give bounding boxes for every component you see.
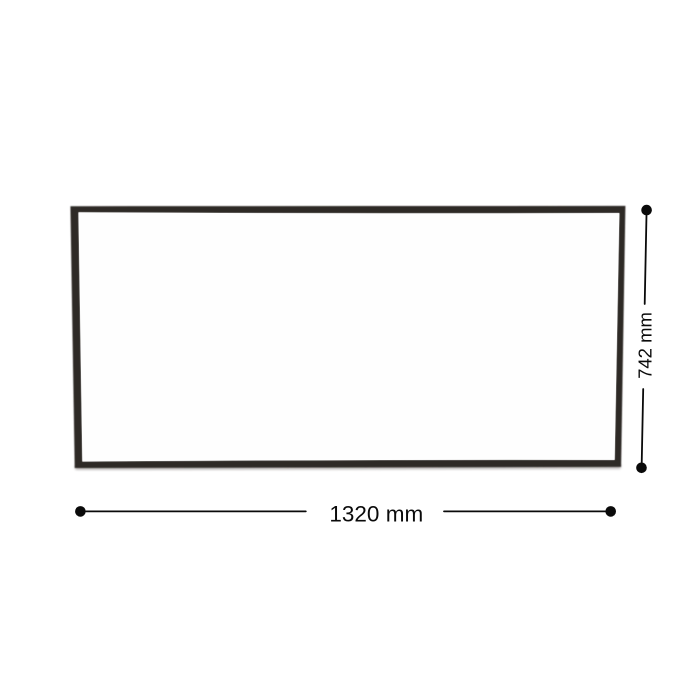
svg-text:742 mm: 742 mm [634, 312, 655, 379]
svg-text:1320 mm: 1320 mm [329, 502, 423, 527]
